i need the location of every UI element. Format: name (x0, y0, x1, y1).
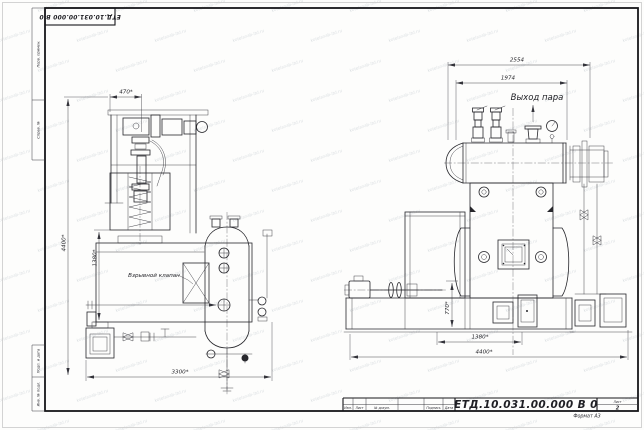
watermark-text: kotelsnab-ltd.ru (37, 178, 70, 193)
watermark-text: kotelsnab-ltd.ru (622, 328, 644, 343)
watermark-text: kotelsnab-ltd.ru (622, 208, 644, 223)
watermark-text: kotelsnab-ltd.ru (310, 328, 343, 343)
designation-text: ЕТД.10.031.00.000 В 0 (454, 399, 598, 411)
watermark-text: kotelsnab-ltd.ru (310, 88, 343, 103)
water-gauge-assembly (570, 141, 608, 187)
watermark-text: kotelsnab-ltd.ru (427, 358, 460, 373)
feed-piping (570, 184, 632, 332)
watermark-text: kotelsnab-ltd.ru (37, 298, 70, 313)
watermark-text: kotelsnab-ltd.ru (271, 298, 304, 313)
dim-770: 770* (445, 301, 451, 315)
watermark-text: kotelsnab-ltd.ru (0, 148, 31, 163)
air-duct-box (405, 212, 465, 298)
watermark-text: kotelsnab-ltd.ru (232, 148, 265, 163)
watermark-text: kotelsnab-ltd.ru (622, 88, 644, 103)
watermark-text: kotelsnab-ltd.ru (349, 0, 382, 13)
watermark-text: kotelsnab-ltd.ru (271, 178, 304, 193)
watermark-text: kotelsnab-ltd.ru (37, 118, 70, 133)
watermark-text: kotelsnab-ltd.ru (76, 328, 109, 343)
watermark-text: kotelsnab-ltd.ru (388, 328, 421, 343)
watermark-text: kotelsnab-ltd.ru (154, 328, 187, 343)
watermark-text: kotelsnab-ltd.ru (349, 118, 382, 133)
watermark-text: kotelsnab-ltd.ru (115, 418, 148, 430)
watermark-text: kotelsnab-ltd.ru (115, 238, 148, 253)
watermark-text: kotelsnab-ltd.ru (583, 358, 616, 373)
steam-outlet-label: Выход пара (511, 93, 564, 103)
watermark-text: kotelsnab-ltd.ru (154, 28, 187, 43)
watermark-text: kotelsnab-ltd.ru (388, 88, 421, 103)
format-label: Формат А3 (573, 414, 600, 420)
watermark-text: kotelsnab-ltd.ru (232, 388, 265, 403)
watermark-text: kotelsnab-ltd.ru (505, 418, 538, 430)
watermark-text: kotelsnab-ltd.ru (115, 118, 148, 133)
tb-col-list: Лист (354, 406, 363, 410)
watermark-text: kotelsnab-ltd.ru (154, 88, 187, 103)
watermark-text: kotelsnab-ltd.ru (232, 88, 265, 103)
watermark-text: kotelsnab-ltd.ru (349, 358, 382, 373)
watermark-text: kotelsnab-ltd.ru (76, 388, 109, 403)
watermark-text: kotelsnab-ltd.ru (583, 418, 616, 430)
watermark-text: kotelsnab-ltd.ru (427, 298, 460, 313)
watermark-text: kotelsnab-ltd.ru (583, 58, 616, 73)
watermark-text: kotelsnab-ltd.ru (388, 148, 421, 163)
watermark-text: kotelsnab-ltd.ru (271, 238, 304, 253)
watermark-text: kotelsnab-ltd.ru (232, 268, 265, 283)
watermark-text: kotelsnab-ltd.ru (583, 238, 616, 253)
front-view: Выход пара (344, 93, 632, 355)
explosion-valve-label: Взрывной клапан (128, 273, 180, 279)
watermark-text: kotelsnab-ltd.ru (76, 148, 109, 163)
watermark-text: kotelsnab-ltd.ru (76, 208, 109, 223)
watermark-text: kotelsnab-ltd.ru (193, 238, 226, 253)
tb-col-podpis: Подпись (426, 406, 440, 410)
watermark-text: kotelsnab-ltd.ru (271, 0, 304, 13)
margin-label-inv-podl: Инв. № подл. (37, 382, 41, 407)
watermark-text: kotelsnab-ltd.ru (0, 388, 31, 403)
watermark-text: kotelsnab-ltd.ru (232, 28, 265, 43)
watermark-text: kotelsnab-ltd.ru (583, 0, 616, 13)
watermark-text: kotelsnab-ltd.ru (193, 178, 226, 193)
watermark-text: kotelsnab-ltd.ru (622, 148, 644, 163)
watermark-layer: kotelsnab-ltd.rukotelsnab-ltd.rukotelsna… (0, 0, 644, 430)
watermark-text: kotelsnab-ltd.ru (349, 238, 382, 253)
tb-col-izm: Изм. (344, 406, 352, 410)
watermark-text: kotelsnab-ltd.ru (0, 328, 31, 343)
dim-1380-left: 1380* (93, 249, 99, 266)
watermark-text: kotelsnab-ltd.ru (37, 358, 70, 373)
watermark-text: kotelsnab-ltd.ru (0, 268, 31, 283)
watermark-text: kotelsnab-ltd.ru (544, 28, 577, 43)
watermark-text: kotelsnab-ltd.ru (76, 268, 109, 283)
watermark-text: kotelsnab-ltd.ru (505, 0, 538, 13)
safety-valve-right (490, 106, 506, 142)
sheet-number: 2 (616, 406, 620, 412)
watermark-text: kotelsnab-ltd.ru (115, 358, 148, 373)
watermark-text: kotelsnab-ltd.ru (505, 358, 538, 373)
watermark-text: kotelsnab-ltd.ru (115, 0, 148, 13)
watermark-text: kotelsnab-ltd.ru (154, 388, 187, 403)
watermark-text: kotelsnab-ltd.ru (0, 208, 31, 223)
tb-col-data: Дата (444, 406, 453, 410)
dim-1974: 1974 (501, 76, 516, 82)
watermark-text: kotelsnab-ltd.ru (349, 58, 382, 73)
watermark-text: kotelsnab-ltd.ru (115, 298, 148, 313)
watermark-text: kotelsnab-ltd.ru (388, 388, 421, 403)
watermark-text: kotelsnab-ltd.ru (505, 178, 538, 193)
watermark-text: kotelsnab-ltd.ru (37, 0, 70, 13)
margin-label-podp-data: Подп. и дата (37, 349, 41, 373)
top-designation-text: ЕТД.10.031.00.000 В 0 (39, 13, 121, 20)
watermark-text: kotelsnab-ltd.ru (466, 28, 499, 43)
watermark-text: kotelsnab-ltd.ru (310, 28, 343, 43)
watermark-text: kotelsnab-ltd.ru (0, 28, 31, 43)
pressure-gauge (547, 121, 558, 144)
watermark-text: kotelsnab-ltd.ru (349, 178, 382, 193)
drawing-canvas: kotelsnab-ltd.rukotelsnab-ltd.rukotelsna… (0, 0, 644, 430)
watermark-text: kotelsnab-ltd.ru (427, 178, 460, 193)
watermark-text: kotelsnab-ltd.ru (544, 268, 577, 283)
watermark-text: kotelsnab-ltd.ru (0, 88, 31, 103)
dim-470: 470* (119, 90, 133, 96)
watermark-text: kotelsnab-ltd.ru (310, 388, 343, 403)
watermark-text: kotelsnab-ltd.ru (115, 58, 148, 73)
watermark-text: kotelsnab-ltd.ru (310, 148, 343, 163)
dim-2554: 2554 (510, 58, 525, 64)
watermark-text: kotelsnab-ltd.ru (622, 388, 644, 403)
watermark-text: kotelsnab-ltd.ru (427, 418, 460, 430)
watermark-text: kotelsnab-ltd.ru (154, 148, 187, 163)
watermark-text: kotelsnab-ltd.ru (427, 0, 460, 13)
tb-col-dokum: № докум. (373, 406, 390, 410)
watermark-text: kotelsnab-ltd.ru (622, 28, 644, 43)
watermark-text: kotelsnab-ltd.ru (271, 58, 304, 73)
watermark-text: kotelsnab-ltd.ru (37, 418, 70, 430)
watermark-text: kotelsnab-ltd.ru (466, 268, 499, 283)
watermark-text: kotelsnab-ltd.ru (154, 208, 187, 223)
watermark-text: kotelsnab-ltd.ru (427, 58, 460, 73)
dim-3300: 3300* (171, 370, 188, 376)
watermark-text: kotelsnab-ltd.ru (388, 28, 421, 43)
sheet-label: Лист (612, 400, 621, 404)
watermark-text: kotelsnab-ltd.ru (349, 418, 382, 430)
margin-label-perv-primen: Перв. примен. (37, 41, 41, 68)
watermark-text: kotelsnab-ltd.ru (310, 268, 343, 283)
watermark-text: kotelsnab-ltd.ru (193, 58, 226, 73)
watermark-text: kotelsnab-ltd.ru (37, 58, 70, 73)
margin-label-sprav: Справ. № (37, 121, 41, 139)
safety-valve-left (472, 106, 488, 142)
watermark-text: kotelsnab-ltd.ru (544, 328, 577, 343)
watermark-text: kotelsnab-ltd.ru (622, 268, 644, 283)
front-view-dimensions: 2554 1974 770* 1380* 4400* (350, 58, 628, 361)
watermark-text: kotelsnab-ltd.ru (466, 148, 499, 163)
watermark-text: kotelsnab-ltd.ru (544, 208, 577, 223)
watermark-text: kotelsnab-ltd.ru (232, 208, 265, 223)
drawing-sheet: kotelsnab-ltd.rukotelsnab-ltd.rukotelsna… (0, 0, 644, 430)
dim-1380-right: 1380* (471, 335, 488, 341)
watermark-text: kotelsnab-ltd.ru (466, 88, 499, 103)
watermark-text: kotelsnab-ltd.ru (271, 418, 304, 430)
dim-4400-right: 4400* (475, 350, 492, 356)
watermark-text: kotelsnab-ltd.ru (583, 118, 616, 133)
watermark-text: kotelsnab-ltd.ru (193, 418, 226, 430)
title-block: Изм. Лист № докум. Подпись Дата ЕТД.10.0… (343, 398, 638, 420)
watermark-text: kotelsnab-ltd.ru (388, 268, 421, 283)
watermark-text: kotelsnab-ltd.ru (271, 358, 304, 373)
watermark-text: kotelsnab-ltd.ru (76, 28, 109, 43)
watermark-text: kotelsnab-ltd.ru (76, 88, 109, 103)
dim-4400-left: 4400* (62, 234, 68, 251)
watermark-text: kotelsnab-ltd.ru (388, 208, 421, 223)
watermark-text: kotelsnab-ltd.ru (427, 118, 460, 133)
watermark-text: kotelsnab-ltd.ru (349, 298, 382, 313)
watermark-text: kotelsnab-ltd.ru (271, 118, 304, 133)
watermark-text: kotelsnab-ltd.ru (583, 178, 616, 193)
watermark-text: kotelsnab-ltd.ru (232, 328, 265, 343)
watermark-text: kotelsnab-ltd.ru (310, 208, 343, 223)
watermark-text: kotelsnab-ltd.ru (193, 0, 226, 13)
